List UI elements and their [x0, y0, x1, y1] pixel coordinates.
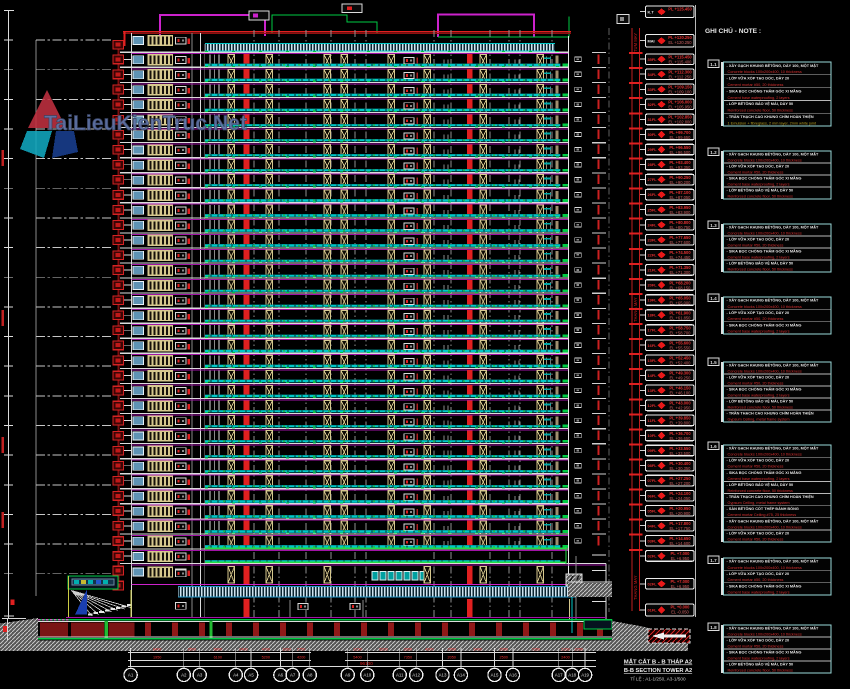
svg-text:- LỚP BÊTÔNG BẢO VỆ MÁI, DÀY 5: - LỚP BÊTÔNG BẢO VỆ MÁI, DÀY 50	[727, 482, 794, 487]
svg-text:EL +115.400: EL +115.400	[669, 60, 693, 65]
svg-text:2650: 2650	[404, 648, 412, 652]
svg-text:Cement mortar #50, 20 thicknes: Cement mortar #50, 20 thickness	[728, 317, 784, 321]
svg-text:Cement mortar #50, 20 thicknes: Cement mortar #50, 20 thickness	[728, 171, 784, 175]
svg-text:EL +30.350: EL +30.350	[670, 466, 692, 471]
svg-text:- XÂY GẠCH KHUNG BÊTÔNG, DÀY 1: - XÂY GẠCH KHUNG BÊTÔNG, DÀY 100, MỘT MẶ…	[727, 626, 820, 631]
svg-text:14FL: 14FL	[648, 373, 658, 378]
svg-text:- XÂY GẠCH KHUNG BÊTÔNG, DÀY 1: - XÂY GẠCH KHUNG BÊTÔNG, DÀY 100, MỘT MẶ…	[727, 446, 820, 451]
svg-text:1.5: 1.5	[710, 360, 717, 365]
svg-text:5400: 5400	[473, 648, 481, 652]
svg-text:EL +27.200: EL +27.200	[670, 481, 692, 486]
svg-text:8400: 8400	[153, 648, 161, 652]
svg-text:Reinforced concrete floor, 50: Reinforced concrete floor, 50 thickness	[728, 669, 794, 673]
svg-text:2950: 2950	[447, 648, 455, 652]
svg-text:EL +6.950: EL +6.950	[671, 584, 690, 589]
svg-text:1.3: 1.3	[710, 223, 717, 228]
svg-text:Concrete blocks 100x200x400, 1: Concrete blocks 100x200x400, 10 thicknes…	[728, 566, 802, 570]
svg-text:2750: 2750	[297, 648, 305, 652]
svg-text:33FL: 33FL	[648, 87, 658, 92]
svg-text:Cement base waterproofing, 2 l: Cement base waterproofing, 2 layers	[728, 183, 790, 187]
svg-text:29FL: 29FL	[648, 147, 658, 152]
svg-text:5200: 5200	[379, 648, 387, 652]
svg-text:10FL: 10FL	[648, 433, 658, 438]
svg-text:2400: 2400	[239, 648, 247, 652]
svg-text:1.7: 1.7	[710, 558, 717, 563]
svg-text:A6: A6	[278, 673, 284, 678]
svg-text:Concrete blocks 100x200x400, 1: Concrete blocks 100x200x400, 10 thicknes…	[728, 633, 802, 637]
svg-text:THANG MAY: THANG MAY	[633, 297, 638, 322]
svg-text:EL +96.500: EL +96.500	[670, 150, 692, 155]
svg-text:EL +71.300: EL +71.300	[670, 270, 692, 275]
svg-text:- LỚP VỮA XỐP TẠO DỐC, DÀY 20: - LỚP VỮA XỐP TẠO DỐC, DÀY 20	[727, 375, 790, 380]
svg-text:A14: A14	[457, 673, 465, 678]
svg-text:06FL: 06FL	[648, 493, 658, 498]
svg-text:- TRẦN THẠCH CAO KHUNG CHÌM HO: - TRẦN THẠCH CAO KHUNG CHÌM HOÀN THIỆN	[727, 411, 814, 416]
svg-text:1 Emulsion + fibreglass, 2 mm: 1 Emulsion + fibreglass, 2 mm layer, 2mm…	[728, 121, 817, 125]
svg-text:19FL: 19FL	[648, 298, 658, 303]
svg-text:EL +109.100: EL +109.100	[668, 90, 692, 95]
svg-text:EL +20.900: EL +20.900	[670, 511, 692, 516]
svg-text:12FL: 12FL	[648, 403, 658, 408]
svg-text:- SIKA BỌC CHỐNG THẤM GỐC XI M: - SIKA BỌC CHỐNG THẤM GỐC XI MĂNG	[727, 88, 802, 93]
svg-text:1.1: 1.1	[710, 62, 717, 67]
svg-text:Cement base waterproofing, 2 l: Cement base waterproofing, 2 layers	[728, 477, 790, 481]
svg-text:- SÀN BÊTÔNG CỐT THÉP ĐÁNH BÓN: - SÀN BÊTÔNG CỐT THÉP ĐÁNH BÓNG	[727, 506, 799, 511]
svg-text:- LỚP BÊTÔNG BẢO VỆ MÁI, DÀY 5: - LỚP BÊTÔNG BẢO VỆ MÁI, DÀY 50	[727, 662, 794, 667]
svg-text:- SIKA BỌC CHỐNG THẤM GỐC XI M: - SIKA BỌC CHỐNG THẤM GỐC XI MĂNG	[727, 322, 802, 327]
svg-text:20FL: 20FL	[648, 283, 658, 288]
svg-text:- XÂY GẠCH KHUNG BÊTÔNG, DÀY 1: - XÂY GẠCH KHUNG BÊTÔNG, DÀY 100, MỘT MẶ…	[727, 363, 820, 368]
svg-text:1.6: 1.6	[710, 444, 717, 449]
svg-text:- XÂY GẠCH KHUNG BÊTÔNG, DÀY 1: - XÂY GẠCH KHUNG BÊTÔNG, DÀY 100, MỘT MẶ…	[727, 225, 820, 230]
svg-text:5200: 5200	[262, 656, 270, 660]
svg-text:- LỚP VỮA XỐP TẠO DỐC, DÀY 20: - LỚP VỮA XỐP TẠO DỐC, DÀY 20	[727, 164, 790, 169]
svg-text:Cement base waterproofing, 2 l: Cement base waterproofing, 2 layers	[728, 96, 790, 100]
svg-text:08FL: 08FL	[648, 463, 658, 468]
svg-text:EL +105.950: EL +105.950	[668, 105, 692, 110]
svg-text:16FL: 16FL	[648, 343, 658, 348]
svg-text:34FL: 34FL	[648, 72, 658, 77]
svg-text:07FL: 07FL	[648, 478, 658, 483]
svg-text:- LỚP VỮA XỐP TẠO DỐC, DÀY 20: - LỚP VỮA XỐP TẠO DỐC, DÀY 20	[727, 237, 790, 242]
svg-text:EL +68.150: EL +68.150	[670, 285, 692, 290]
svg-text:- LỚP BÊTÔNG BẢO VỆ MÁI, DÀY 5: - LỚP BÊTÔNG BẢO VỆ MÁI, DÀY 50	[727, 261, 794, 266]
svg-text:2400: 2400	[561, 656, 569, 660]
svg-text:2150: 2150	[561, 648, 569, 652]
svg-text:Cement base waterproofing, 2 l: Cement base waterproofing, 2 layers	[728, 394, 790, 398]
svg-text:- TRẦN THẠCH CAO KHUNG CHÌM HO: - TRẦN THẠCH CAO KHUNG CHÌM HOÀN THIỆN	[727, 494, 814, 499]
svg-text:Cement base waterproofing, 2 l: Cement base waterproofing, 2 layers	[728, 657, 790, 661]
svg-text:21FL: 21FL	[648, 268, 658, 273]
svg-text:EL +99.650: EL +99.650	[670, 135, 692, 140]
svg-text:PL +125.450: PL +125.450	[668, 7, 692, 12]
svg-text:Cement mortar #50, 20 thicknes: Cement mortar #50, 20 thickness	[728, 83, 784, 87]
svg-text:EL +65.000: EL +65.000	[670, 300, 692, 305]
svg-text:1.4: 1.4	[710, 296, 717, 301]
svg-text:- SIKA BỌC CHỐNG THẤM GỐC XI M: - SIKA BỌC CHỐNG THẤM GỐC XI MĂNG	[727, 650, 802, 655]
svg-text:- SIKA BỌC CHỐNG THẤM GỐC XI M: - SIKA BỌC CHỐNG THẤM GỐC XI MĂNG	[727, 387, 802, 392]
svg-text:31FL: 31FL	[648, 117, 658, 122]
svg-text:02FL: 02FL	[648, 581, 658, 586]
svg-text:EL +17.750: EL +17.750	[670, 526, 692, 531]
svg-text:GHI CHÚ - NOTE :: GHI CHÚ - NOTE :	[705, 26, 761, 35]
svg-text:5800: 5800	[214, 648, 222, 652]
svg-text:EL +42.950: EL +42.950	[670, 406, 692, 411]
svg-text:EL +52.400: EL +52.400	[670, 361, 692, 366]
svg-text:EL +14.600: EL +14.600	[670, 541, 692, 546]
svg-text:24FL: 24FL	[648, 222, 658, 227]
svg-text:- XÂY GẠCH KHUNG BÊTÔNG, DÀY 1: - XÂY GẠCH KHUNG BÊTÔNG, DÀY 100, MỘT MẶ…	[727, 559, 820, 564]
svg-text:- XÂY GẠCH KHUNG BÊTÔNG, DÀY 1: - XÂY GẠCH KHUNG BÊTÔNG, DÀY 100, MỘT MẶ…	[727, 63, 820, 68]
svg-text:- XÂY GẠCH KHUNG BÊTÔNG, DÀY 1: - XÂY GẠCH KHUNG BÊTÔNG, DÀY 100, MỘT MẶ…	[727, 518, 820, 523]
svg-text:EL +83.900: EL +83.900	[670, 210, 692, 215]
svg-text:- SIKA BỌC CHỐNG THẤM GỐC XI M: - SIKA BỌC CHỐNG THẤM GỐC XI MĂNG	[727, 583, 802, 588]
svg-text:09FL: 09FL	[648, 448, 658, 453]
svg-text:Cement mortar #50, 20 thicknes: Cement mortar #50, 20 thickness	[728, 244, 784, 248]
svg-text:A2: A2	[181, 673, 187, 678]
svg-text:B-B SECTION TOWER A2: B-B SECTION TOWER A2	[624, 668, 692, 674]
svg-text:A3: A3	[197, 673, 203, 678]
svg-text:- LỚP BÊTÔNG BẢO VỆ MÁI, DÀY 5: - LỚP BÊTÔNG BẢO VỆ MÁI, DÀY 50	[727, 101, 794, 106]
svg-text:27FL: 27FL	[648, 177, 658, 182]
svg-text:EL +33.500: EL +33.500	[670, 451, 692, 456]
svg-text:K.T: K.T	[648, 9, 655, 14]
svg-text:Cement base waterproofing, 2 l: Cement base waterproofing, 2 layers	[728, 591, 790, 595]
svg-text:23FL: 23FL	[648, 237, 658, 242]
svg-text:EL +61.850: EL +61.850	[670, 315, 692, 320]
svg-text:3150: 3150	[353, 648, 361, 652]
svg-text:Concrete blocks 100x200x400, 1: Concrete blocks 100x200x400, 10 thicknes…	[728, 453, 802, 457]
svg-text:7350: 7350	[532, 648, 540, 652]
svg-text:EL +77.600: EL +77.600	[670, 240, 692, 245]
svg-text:A5: A5	[248, 673, 254, 678]
svg-text:A15: A15	[491, 673, 499, 678]
svg-text:A16: A16	[509, 673, 517, 678]
svg-text:TaiLieuKienTruc.Net: TaiLieuKienTruc.Net	[44, 111, 247, 135]
svg-text:Cement base waterproofing, 2 l: Cement base waterproofing, 2 layers	[728, 256, 790, 260]
svg-text:Reinforced concrete floor, 50: Reinforced concrete floor, 50 thickness	[728, 406, 794, 410]
svg-text:26FL: 26FL	[648, 192, 658, 197]
svg-text:Reinforced concrete floor, 50: Reinforced concrete floor, 50 thickness	[728, 489, 794, 493]
svg-text:- SIKA BỌC CHỐNG THẤM GỐC XI M: - SIKA BỌC CHỐNG THẤM GỐC XI MĂNG	[727, 176, 802, 181]
svg-text:2500: 2500	[188, 648, 196, 652]
svg-text:EL +46.100: EL +46.100	[670, 391, 692, 396]
svg-text:EL +39.800: EL +39.800	[670, 421, 692, 426]
svg-text:A7: A7	[290, 673, 296, 678]
svg-text:01FL: 01FL	[648, 608, 658, 613]
svg-text:A19: A19	[581, 673, 589, 678]
svg-text:1950: 1950	[153, 656, 161, 660]
svg-text:28FL: 28FL	[648, 162, 658, 167]
svg-text:1.8: 1.8	[710, 625, 717, 630]
svg-text:- LỚP VỮA XỐP TẠO DỐC, DÀY 20: - LỚP VỮA XỐP TẠO DỐC, DÀY 20	[727, 310, 790, 315]
svg-text:96100: 96100	[360, 661, 373, 666]
svg-text:TUM MAY: TUM MAY	[633, 33, 638, 52]
svg-text:22FL: 22FL	[648, 252, 658, 257]
svg-text:4700: 4700	[262, 648, 270, 652]
svg-text:7350: 7350	[404, 656, 412, 660]
svg-text:5400: 5400	[353, 656, 361, 660]
svg-text:- TRẦN THẠCH CAO KHUNG CHÌM HO: - TRẦN THẠCH CAO KHUNG CHÌM HOÀN THIỆN	[727, 114, 814, 119]
svg-text:Concrete blocks 100x200x400, 1: Concrete blocks 100x200x400, 10 thicknes…	[728, 232, 802, 236]
svg-text:2500: 2500	[499, 656, 507, 660]
svg-text:Cement base waterproofing, 2 l: Cement base waterproofing, 2 layers	[728, 330, 790, 334]
svg-text:Reinforced concrete floor, 50: Reinforced concrete floor, 50 thickness	[728, 109, 794, 113]
svg-text:A4: A4	[233, 673, 239, 678]
svg-text:A18: A18	[568, 673, 576, 678]
svg-text:25FL: 25FL	[648, 207, 658, 212]
svg-text:EL +24.050: EL +24.050	[670, 496, 692, 501]
svg-text:EL +80.750: EL +80.750	[670, 225, 692, 230]
svg-text:18FL: 18FL	[648, 313, 658, 318]
svg-text:05FL: 05FL	[648, 508, 658, 513]
svg-text:EL +93.350: EL +93.350	[670, 165, 692, 170]
svg-text:Cement mortar #50, 20 thicknes: Cement mortar #50, 20 thickness	[728, 538, 784, 542]
svg-text:Concrete blocks 100x200x400, 1: Concrete blocks 100x200x400, 10 thicknes…	[728, 70, 802, 74]
svg-text:EL +102.800: EL +102.800	[668, 120, 692, 125]
svg-text:A9: A9	[345, 673, 351, 678]
svg-text:Concrete blocks 100x200x400, 1: Concrete blocks 100x200x400, 10 thicknes…	[728, 159, 802, 163]
svg-text:- SIKA BỌC CHỐNG THẤM GỐC XI M: - SIKA BỌC CHỐNG THẤM GỐC XI MĂNG	[727, 249, 802, 254]
svg-text:Cement mortar #50, 20 thicknes: Cement mortar #50, 20 thickness	[728, 382, 784, 386]
svg-text:30FL: 30FL	[648, 132, 658, 137]
svg-text:EL +55.550: EL +55.550	[670, 346, 692, 351]
svg-text:2950: 2950	[499, 648, 507, 652]
svg-text:15FL: 15FL	[648, 358, 658, 363]
svg-text:- SIKA BỌC CHỐNG THẤM GỐC XI M: - SIKA BỌC CHỐNG THẤM GỐC XI MĂNG	[727, 470, 802, 475]
svg-text:- XÂY GẠCH KHUNG BÊTÔNG, DÀY 1: - XÂY GẠCH KHUNG BÊTÔNG, DÀY 100, MỘT MẶ…	[727, 298, 820, 303]
svg-text:11FL: 11FL	[648, 418, 657, 423]
svg-text:Concrete blocks 100x200x400, 1: Concrete blocks 100x200x400, 10 thicknes…	[728, 525, 802, 529]
svg-text:Gypsum Ceiling, metal frame sy: Gypsum Ceiling, metal frame system	[728, 418, 790, 422]
svg-text:MẶT CẮT B - B THÁP A2: MẶT CẮT B - B THÁP A2	[624, 658, 693, 666]
svg-text:- LỚP VỮA XỐP TẠO DỐC, DÀY 20: - LỚP VỮA XỐP TẠO DỐC, DÀY 20	[727, 530, 790, 535]
svg-text:1950: 1950	[282, 648, 290, 652]
svg-text:2050: 2050	[447, 656, 455, 660]
svg-text:- LỚP VỮA XỐP TẠO DỐC, DÀY 20: - LỚP VỮA XỐP TẠO DỐC, DÀY 20	[727, 458, 790, 463]
svg-text:Concrete blocks 100x200x400, 1: Concrete blocks 100x200x400, 10 thicknes…	[728, 305, 802, 309]
svg-text:Cement mortar Ceiling #75, 25: Cement mortar Ceiling #75, 25 thickness	[728, 513, 797, 517]
svg-text:EL +74.450: EL +74.450	[670, 255, 692, 260]
svg-text:Cement mortar #50, 20 thicknes: Cement mortar #50, 20 thickness	[728, 465, 784, 469]
svg-text:Reinforced concrete floor, 50: Reinforced concrete floor, 50 thickness	[728, 268, 794, 272]
svg-text:- LỚP VỮA XỐP TẠO DỐC, DÀY 20: - LỚP VỮA XỐP TẠO DỐC, DÀY 20	[727, 638, 790, 643]
svg-text:- LỚP VỮA XỐP TẠO DỐC, DÀY 20: - LỚP VỮA XỐP TẠO DỐC, DÀY 20	[727, 571, 790, 576]
svg-text:- XÂY GẠCH KHUNG BÊTÔNG, DÀY 1: - XÂY GẠCH KHUNG BÊTÔNG, DÀY 100, MỘT MẶ…	[727, 152, 820, 157]
svg-text:4200: 4200	[425, 648, 433, 652]
svg-text:EL +49.250: EL +49.250	[670, 376, 692, 381]
svg-text:Concrete blocks 100x200x400, 1: Concrete blocks 100x200x400, 10 thicknes…	[728, 370, 802, 374]
svg-text:A12: A12	[412, 673, 420, 678]
svg-text:35FL: 35FL	[648, 57, 658, 62]
svg-text:A10: A10	[363, 673, 371, 678]
svg-text:- LỚP BÊTÔNG BẢO VỆ MÁI, DÀY 5: - LỚP BÊTÔNG BẢO VỆ MÁI, DÀY 50	[727, 399, 794, 404]
svg-text:A13: A13	[439, 673, 447, 678]
svg-text:TỈ LỆ : A1-1/250, A3-1/500: TỈ LỆ : A1-1/250, A3-1/500	[630, 675, 686, 682]
svg-text:4200: 4200	[297, 656, 305, 660]
svg-text:04FL: 04FL	[648, 523, 658, 528]
svg-text:Cement mortar #50, 20 thicknes: Cement mortar #50, 20 thickness	[728, 645, 784, 649]
svg-text:MAI: MAI	[648, 38, 655, 43]
svg-text:03FL: 03FL	[648, 538, 658, 543]
svg-text:- LỚP BÊTÔNG BẢO VỆ MÁI, DÀY 5: - LỚP BÊTÔNG BẢO VỆ MÁI, DÀY 50	[727, 188, 794, 193]
svg-text:02FL: 02FL	[648, 554, 658, 559]
svg-text:6100: 6100	[214, 656, 222, 660]
svg-text:32FL: 32FL	[648, 102, 658, 107]
svg-text:THANG MAY: THANG MAY	[633, 575, 638, 600]
svg-text:1.2: 1.2	[710, 150, 717, 155]
svg-text:A8: A8	[307, 673, 313, 678]
svg-text:A17: A17	[555, 673, 563, 678]
svg-text:A11: A11	[396, 673, 404, 678]
svg-text:EL +112.250: EL +112.250	[669, 75, 693, 80]
svg-text:Gypsum Ceiling, metal frame sy: Gypsum Ceiling, metal frame system	[728, 501, 790, 505]
svg-text:EL +87.050: EL +87.050	[670, 195, 692, 200]
svg-text:A1: A1	[128, 673, 134, 678]
svg-text:EL +120.250: EL +120.250	[668, 40, 692, 45]
svg-text:Reinforced concrete floor, 50: Reinforced concrete floor, 50 thickness	[728, 195, 794, 199]
svg-text:13FL: 13FL	[648, 388, 658, 393]
svg-text:17FL: 17FL	[648, 328, 658, 333]
svg-text:EL +58.700: EL +58.700	[670, 330, 692, 335]
svg-text:EL +90.200: EL +90.200	[670, 180, 692, 185]
svg-text:Cement mortar #50, 20 thicknes: Cement mortar #50, 20 thickness	[728, 578, 784, 582]
svg-text:EL +36.650: EL +36.650	[670, 436, 692, 441]
svg-text:2050: 2050	[574, 648, 582, 652]
svg-text:EL +6.950: EL +6.950	[671, 556, 690, 561]
svg-text:EL -0.050: EL -0.050	[671, 610, 689, 615]
svg-text:- LỚP VỮA XỐP TẠO DỐC, DÀY 20: - LỚP VỮA XỐP TẠO DỐC, DÀY 20	[727, 76, 790, 81]
